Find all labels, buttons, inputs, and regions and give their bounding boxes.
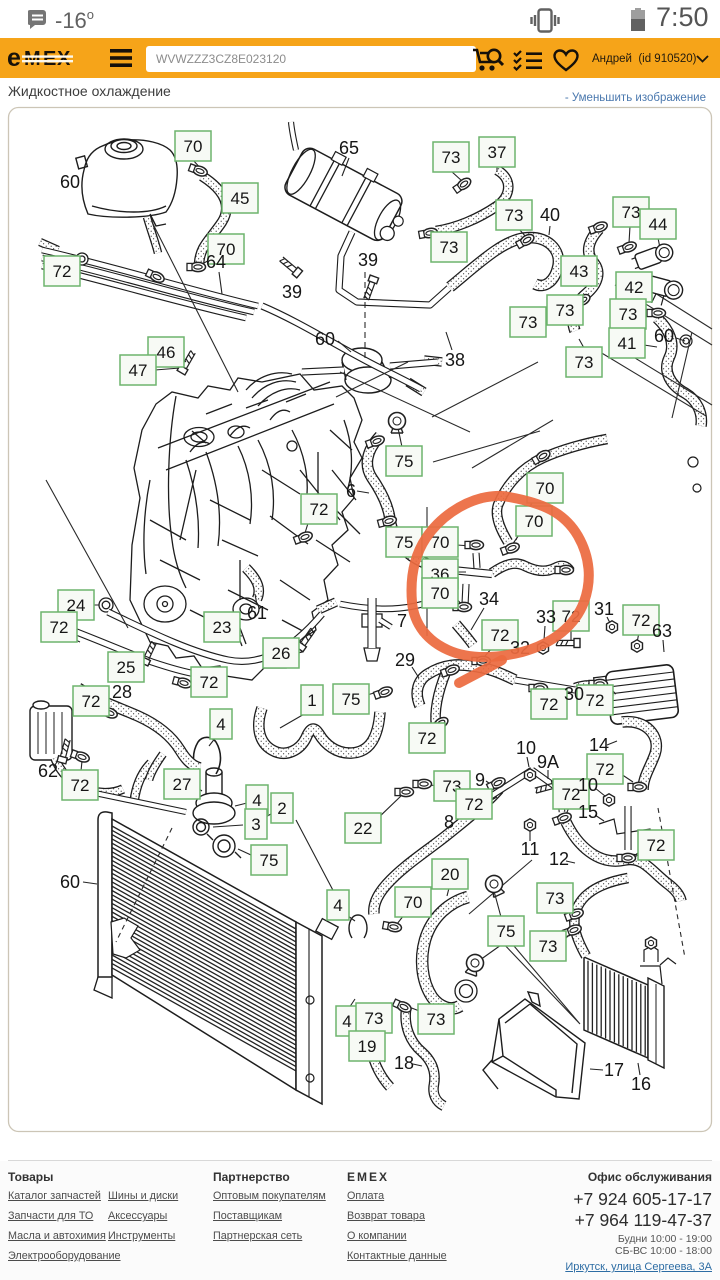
svg-text:73: 73 bbox=[427, 1010, 446, 1029]
svg-text:14: 14 bbox=[589, 735, 609, 755]
svg-text:9: 9 bbox=[475, 770, 485, 790]
svg-text:70: 70 bbox=[431, 584, 450, 603]
svg-text:28: 28 bbox=[112, 682, 132, 702]
svg-text:70: 70 bbox=[404, 893, 423, 912]
svg-text:72: 72 bbox=[632, 611, 651, 630]
svg-text:31: 31 bbox=[594, 599, 614, 619]
svg-text:2: 2 bbox=[277, 799, 286, 818]
svg-text:6: 6 bbox=[346, 481, 356, 501]
svg-text:72: 72 bbox=[596, 760, 615, 779]
svg-text:25: 25 bbox=[117, 658, 136, 677]
svg-text:65: 65 bbox=[339, 138, 359, 158]
svg-text:37: 37 bbox=[488, 143, 507, 162]
svg-text:72: 72 bbox=[50, 618, 69, 637]
svg-text:8: 8 bbox=[444, 812, 454, 832]
svg-text:4: 4 bbox=[216, 715, 225, 734]
svg-text:63: 63 bbox=[652, 621, 672, 641]
svg-text:45: 45 bbox=[231, 189, 250, 208]
svg-text:72: 72 bbox=[200, 673, 219, 692]
svg-text:60: 60 bbox=[60, 872, 80, 892]
svg-text:62: 62 bbox=[38, 761, 58, 781]
svg-text:72: 72 bbox=[418, 729, 437, 748]
svg-text:72: 72 bbox=[465, 795, 484, 814]
svg-text:70: 70 bbox=[525, 512, 544, 531]
svg-text:12: 12 bbox=[549, 849, 569, 869]
svg-text:73: 73 bbox=[622, 203, 641, 222]
svg-text:10: 10 bbox=[578, 775, 598, 795]
svg-text:10: 10 bbox=[516, 738, 536, 758]
svg-text:72: 72 bbox=[53, 262, 72, 281]
svg-text:43: 43 bbox=[570, 262, 589, 281]
svg-text:11: 11 bbox=[521, 839, 540, 859]
svg-text:73: 73 bbox=[619, 305, 638, 324]
svg-text:61: 61 bbox=[247, 603, 267, 623]
svg-text:75: 75 bbox=[342, 690, 361, 709]
svg-text:64: 64 bbox=[206, 252, 226, 272]
svg-text:46: 46 bbox=[157, 343, 176, 362]
svg-text:23: 23 bbox=[213, 618, 232, 637]
svg-text:38: 38 bbox=[445, 350, 465, 370]
svg-text:26: 26 bbox=[272, 644, 291, 663]
svg-text:40: 40 bbox=[540, 205, 560, 225]
svg-text:73: 73 bbox=[539, 937, 558, 956]
svg-text:75: 75 bbox=[395, 452, 414, 471]
svg-text:33: 33 bbox=[536, 607, 556, 627]
svg-text:19: 19 bbox=[358, 1037, 377, 1056]
svg-text:73: 73 bbox=[519, 313, 538, 332]
svg-text:73: 73 bbox=[575, 353, 594, 372]
svg-text:18: 18 bbox=[394, 1053, 414, 1073]
svg-text:72: 72 bbox=[540, 695, 559, 714]
svg-text:29: 29 bbox=[395, 650, 415, 670]
svg-text:34: 34 bbox=[479, 589, 499, 609]
svg-text:15: 15 bbox=[578, 802, 598, 822]
svg-text:4: 4 bbox=[333, 896, 342, 915]
svg-text:47: 47 bbox=[129, 361, 148, 380]
svg-text:4: 4 bbox=[252, 791, 261, 810]
svg-text:70: 70 bbox=[184, 137, 203, 156]
svg-text:39: 39 bbox=[358, 250, 378, 270]
svg-text:72: 72 bbox=[71, 776, 90, 795]
svg-text:72: 72 bbox=[310, 500, 329, 519]
svg-text:72: 72 bbox=[586, 691, 605, 710]
svg-text:72: 72 bbox=[491, 626, 510, 645]
svg-text:39: 39 bbox=[282, 282, 302, 302]
svg-text:72: 72 bbox=[82, 692, 101, 711]
svg-text:73: 73 bbox=[556, 301, 575, 320]
svg-text:60: 60 bbox=[60, 172, 80, 192]
svg-text:60: 60 bbox=[315, 329, 335, 349]
svg-text:42: 42 bbox=[625, 278, 644, 297]
svg-text:22: 22 bbox=[354, 819, 373, 838]
svg-text:1: 1 bbox=[307, 691, 316, 710]
svg-text:75: 75 bbox=[395, 533, 414, 552]
svg-text:9A: 9A bbox=[537, 752, 559, 772]
svg-text:16: 16 bbox=[631, 1074, 651, 1094]
svg-text:20: 20 bbox=[441, 865, 460, 884]
svg-text:73: 73 bbox=[442, 148, 461, 167]
svg-text:41: 41 bbox=[618, 334, 637, 353]
svg-text:30: 30 bbox=[564, 684, 584, 704]
svg-text:4: 4 bbox=[342, 1012, 351, 1031]
svg-text:27: 27 bbox=[173, 775, 192, 794]
svg-text:44: 44 bbox=[649, 215, 668, 234]
svg-text:17: 17 bbox=[604, 1060, 624, 1080]
svg-text:70: 70 bbox=[536, 479, 555, 498]
svg-text:73: 73 bbox=[505, 206, 524, 225]
svg-text:73: 73 bbox=[546, 889, 565, 908]
svg-text:73: 73 bbox=[440, 238, 459, 257]
svg-text:60: 60 bbox=[654, 326, 674, 346]
svg-text:75: 75 bbox=[260, 851, 279, 870]
svg-text:72: 72 bbox=[647, 836, 666, 855]
svg-text:73: 73 bbox=[365, 1009, 384, 1028]
svg-text:7: 7 bbox=[397, 611, 407, 631]
svg-text:75: 75 bbox=[497, 922, 516, 941]
svg-text:3: 3 bbox=[251, 815, 260, 834]
